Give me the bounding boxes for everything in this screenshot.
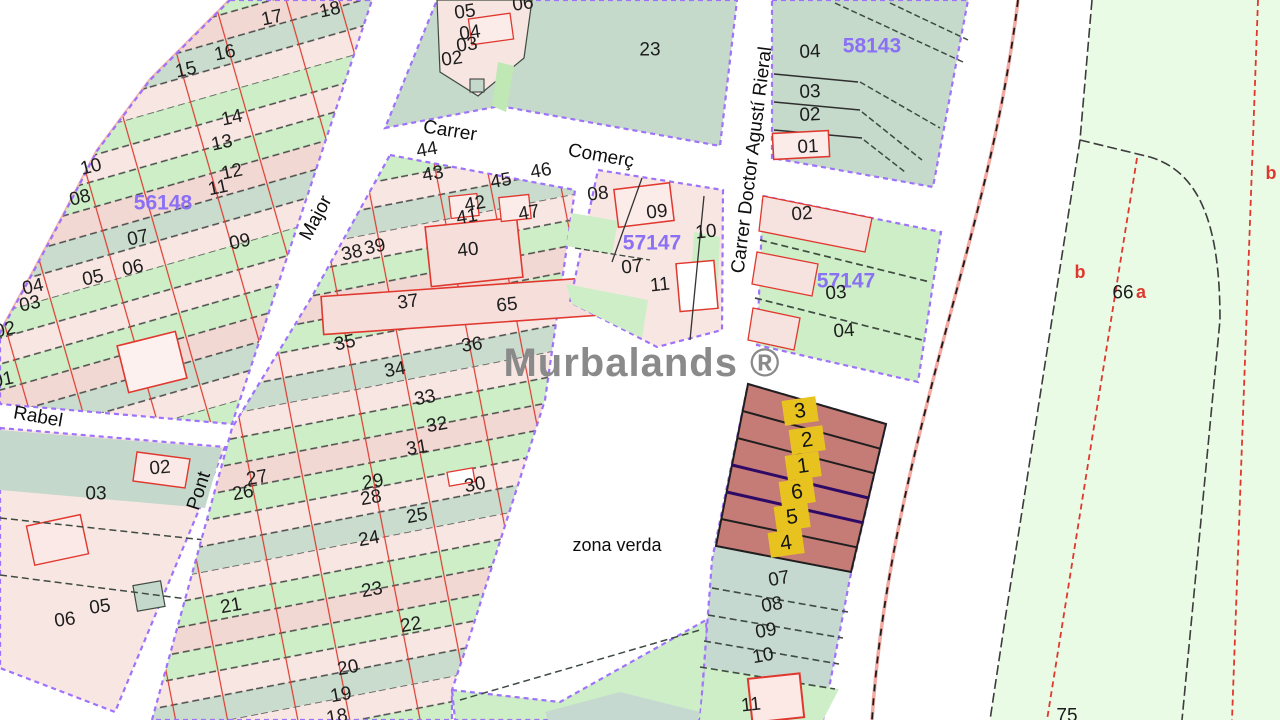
block-58143[interactable]	[772, 0, 968, 187]
block-highlight[interactable]	[700, 384, 886, 720]
block-57147-left[interactable]	[566, 170, 723, 347]
building-outline	[425, 217, 523, 286]
building-outline	[614, 183, 674, 228]
block-57147-right[interactable]	[748, 196, 941, 382]
selected-parcels[interactable]	[716, 384, 886, 572]
building-outline	[772, 131, 829, 160]
building-outline	[499, 194, 531, 221]
building-outline	[748, 673, 804, 720]
teal-parcel	[470, 79, 484, 92]
map-canvas[interactable]	[0, 0, 1280, 720]
block-bottom-center[interactable]	[452, 620, 712, 720]
building-outline	[449, 194, 479, 219]
block-23[interactable]	[385, 0, 737, 146]
cadastral-map-viewport[interactable]: 1718161514131211100856148090706050403020…	[0, 0, 1280, 720]
building-outline	[133, 452, 190, 488]
rural-area[interactable]	[990, 0, 1280, 720]
teal-parcel	[133, 581, 165, 611]
building-outline	[468, 13, 513, 45]
